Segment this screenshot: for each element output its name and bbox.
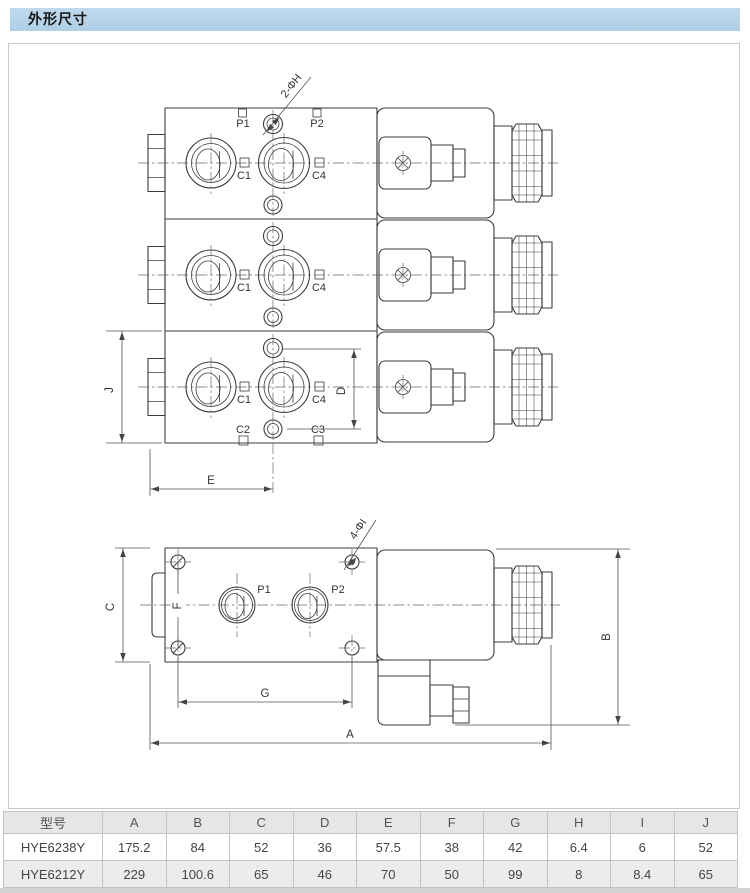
table-cell: 99 xyxy=(484,861,548,888)
bottom-view-drawing: P1 P2 4-ΦI C xyxy=(105,517,630,750)
table-cell: 6.4 xyxy=(547,834,611,861)
column-header: J xyxy=(674,812,738,834)
port-p1-square xyxy=(239,109,247,117)
valve-unit-3 xyxy=(138,332,558,442)
table-cell: 6 xyxy=(611,834,675,861)
table-cell: 46 xyxy=(293,861,357,888)
callout-2-phi-h-label: 2-ΦH xyxy=(279,72,305,100)
port-c1-label: C1 xyxy=(237,282,251,294)
dimension-d: D xyxy=(283,349,361,429)
dim-b-label: B xyxy=(601,633,613,641)
dim-a-label: A xyxy=(346,729,354,741)
table-header-row: 型号 A B C D E F G H I J xyxy=(4,812,738,834)
callout-4-phi-i-label: 4-ΦI xyxy=(347,517,369,542)
column-header: I xyxy=(611,812,675,834)
dimension-a: A xyxy=(150,645,551,750)
table-cell: 38 xyxy=(420,834,484,861)
valve-unit-2 xyxy=(138,220,558,330)
table-cell: 52 xyxy=(674,834,738,861)
dimension-table: 型号 A B C D E F G H I J HYE6238Y 175.2 84… xyxy=(3,811,738,888)
port-c3-label: C3 xyxy=(311,424,325,436)
column-header: F xyxy=(420,812,484,834)
port-c4-label: C4 xyxy=(312,394,326,406)
dimension-drawing: P1 P2 C1 C4 C1 C4 C1 C4 C2 C3 2-ΦH J xyxy=(0,0,750,812)
table-row: HYE6212Y 229 100.6 65 46 70 50 99 8 8.4 … xyxy=(4,861,738,888)
dimension-f: F xyxy=(172,557,186,653)
top-view-drawing: P1 P2 C1 C4 C1 C4 C1 C4 C2 C3 2-ΦH J xyxy=(104,72,558,496)
column-header: D xyxy=(293,812,357,834)
port-c4-label: C4 xyxy=(312,170,326,182)
dim-f-label: F xyxy=(172,602,184,609)
table-cell: 175.2 xyxy=(103,834,167,861)
table-cell: 100.6 xyxy=(166,861,230,888)
column-header: B xyxy=(166,812,230,834)
column-header-model: 型号 xyxy=(4,812,103,834)
column-header: H xyxy=(547,812,611,834)
dimension-g: G xyxy=(178,657,352,708)
table-cell: 36 xyxy=(293,834,357,861)
model-cell: HYE6238Y xyxy=(4,834,103,861)
din-connector xyxy=(378,660,469,725)
port-c2-square xyxy=(239,436,248,445)
table-cell: 84 xyxy=(166,834,230,861)
table-cell: 57.5 xyxy=(357,834,421,861)
dim-c-label: C xyxy=(105,603,117,611)
valve-unit-1 xyxy=(138,108,558,218)
port-p2-label: P2 xyxy=(331,584,344,596)
port-p2-label: P2 xyxy=(310,118,323,130)
table-cell: 42 xyxy=(484,834,548,861)
page-bottom-divider xyxy=(0,888,750,893)
dimension-e: E xyxy=(150,443,273,496)
port-p1-label: P1 xyxy=(257,584,270,596)
callout-2-phi-h: 2-ΦH xyxy=(263,72,311,135)
knurled-nut xyxy=(494,566,552,644)
model-cell: HYE6212Y xyxy=(4,861,103,888)
column-header: E xyxy=(357,812,421,834)
dim-g-label: G xyxy=(261,688,270,700)
port-c3-square xyxy=(314,436,323,445)
column-header: A xyxy=(103,812,167,834)
cable-gland xyxy=(453,687,469,723)
table-cell: 65 xyxy=(230,861,294,888)
port-c2-label: C2 xyxy=(236,424,250,436)
column-header: C xyxy=(230,812,294,834)
table-cell: 8.4 xyxy=(611,861,675,888)
port-c4-label: C4 xyxy=(312,282,326,294)
dim-e-label: E xyxy=(207,475,215,487)
table-cell: 65 xyxy=(674,861,738,888)
dim-j-label: J xyxy=(104,387,116,393)
table-cell: 8 xyxy=(547,861,611,888)
table-row: HYE6238Y 175.2 84 52 36 57.5 38 42 6.4 6… xyxy=(4,834,738,861)
table-cell: 70 xyxy=(357,861,421,888)
port-c1-label: C1 xyxy=(237,394,251,406)
port-p2-square xyxy=(313,109,321,117)
port-p1-label: P1 xyxy=(236,118,249,130)
table-cell: 50 xyxy=(420,861,484,888)
page: { "header": { "title": "外形尺寸" }, "drawin… xyxy=(0,0,750,893)
dim-d-label: D xyxy=(336,387,348,395)
port-c1-label: C1 xyxy=(237,170,251,182)
table-cell: 229 xyxy=(103,861,167,888)
table-cell: 52 xyxy=(230,834,294,861)
column-header: G xyxy=(484,812,548,834)
